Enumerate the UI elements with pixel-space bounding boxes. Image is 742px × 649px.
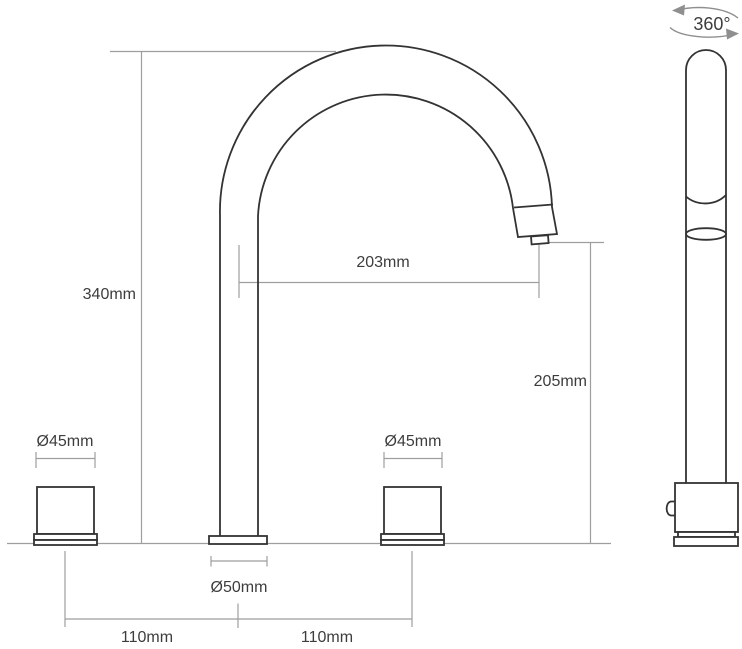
- left-handle-ring-upper: [34, 534, 97, 540]
- spout-aerator-joint-line: [514, 205, 553, 208]
- spout-nozzle: [531, 235, 549, 244]
- rotation-label: 360°: [693, 14, 730, 34]
- label-left-handle-diameter: Ø45mm: [37, 433, 94, 450]
- side-outlet-ellipse: [686, 228, 726, 240]
- spout-outline: [220, 46, 557, 537]
- side-base-body: [675, 483, 738, 532]
- label-spacing-left: 110mm: [121, 629, 173, 646]
- tap-technical-drawing: 360° 340mm 203mm 205mm Ø45mm Ø45mm Ø50mm…: [0, 0, 742, 649]
- spout-base-flange: [209, 536, 267, 544]
- side-base-ring-lower: [674, 537, 738, 546]
- right-handle-ring-lower: [381, 540, 444, 545]
- right-handle-body: [384, 487, 441, 534]
- label-overall-height: 340mm: [83, 286, 136, 303]
- side-view: [667, 50, 738, 546]
- label-spout-reach: 203mm: [356, 254, 409, 271]
- label-spout-base-diameter: Ø50mm: [211, 579, 268, 596]
- label-spout-clearance: 205mm: [534, 373, 587, 390]
- rotation-indicator: 360°: [670, 5, 739, 40]
- left-handle-body: [37, 487, 94, 534]
- dimension-labels: 340mm 203mm 205mm Ø45mm Ø45mm Ø50mm 110m…: [37, 254, 587, 646]
- right-handle: [381, 487, 444, 545]
- left-handle-ring-lower: [34, 540, 97, 545]
- side-base-knob: [667, 502, 675, 516]
- right-handle-ring-upper: [381, 534, 444, 540]
- rotation-arrowhead-left-icon: [672, 5, 685, 16]
- label-spacing-right: 110mm: [301, 629, 353, 646]
- left-handle: [34, 487, 97, 545]
- label-right-handle-diameter: Ø45mm: [385, 433, 442, 450]
- drawing-svg: 360° 340mm 203mm 205mm Ø45mm Ø45mm Ø50mm…: [0, 0, 742, 649]
- side-spout-pipe: [686, 50, 726, 483]
- side-aerator-joint-arc: [686, 195, 726, 203]
